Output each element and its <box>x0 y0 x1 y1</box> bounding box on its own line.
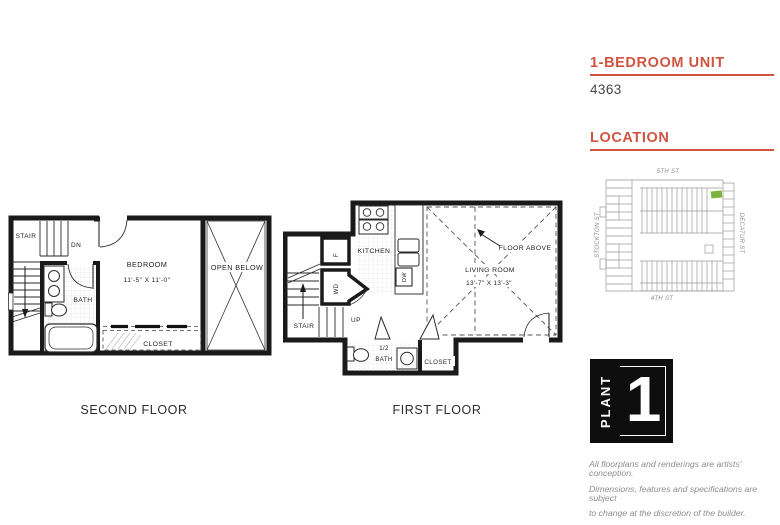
stove <box>359 206 388 234</box>
toilet-bowl <box>52 304 67 316</box>
bedroom-dimension: 11'-5" X 11'-0" <box>124 277 171 284</box>
unit-location-highlight <box>711 190 723 198</box>
street-label-top: 5TH ST <box>657 169 681 175</box>
toilet-tank <box>347 347 354 361</box>
stair-label: STAIR <box>16 233 37 240</box>
unit-type-heading: 1-BEDROOM UNIT <box>590 55 780 71</box>
unit-number: 4363 <box>590 82 622 97</box>
heading-rule <box>590 74 774 76</box>
disclaimer: All floorplans and renderings are artist… <box>589 460 780 525</box>
sink-basin <box>49 286 60 297</box>
washer-dryer-label: WD <box>334 283 340 294</box>
kitchen-sink <box>398 253 419 266</box>
half-bath-label-1: 1/2 <box>379 346 389 352</box>
kitchen-counter <box>395 205 423 294</box>
kitchen-label: KITCHEN <box>358 248 391 255</box>
plan-logo: PLANT 1 <box>590 359 673 443</box>
living-room-label: LIVING ROOM <box>465 267 515 274</box>
disclaimer-line: All floorplans and renderings are artist… <box>589 460 780 478</box>
fridge-label: F <box>334 253 340 257</box>
toilet-tank <box>45 303 52 316</box>
bedroom-label: BEDROOM <box>127 260 168 269</box>
closet-label: CLOSET <box>143 341 173 348</box>
location-heading: LOCATION <box>590 130 780 146</box>
closet-label: CLOSET <box>424 359 451 366</box>
first-floor-caption: FIRST FLOOR <box>334 403 540 417</box>
stair-label: STAIR <box>294 323 315 330</box>
open-below-label: OPEN BELOW <box>211 263 263 272</box>
second-floor-caption: SECOND FLOOR <box>31 403 237 417</box>
dn-label: DN <box>71 242 81 249</box>
street-label-left: STOCKTON ST <box>595 211 601 258</box>
left-wall-window <box>8 293 14 310</box>
half-bath-label-2: BATH <box>375 357 392 363</box>
logo-word: PLANT <box>599 374 614 427</box>
kitchen-sink <box>398 239 419 252</box>
first-floor-plan: F WD DW KITCHEN LIVING ROOM 13'-7" X 13'… <box>283 197 565 387</box>
sink-basin <box>49 271 60 282</box>
logo-number: 1 <box>614 359 673 439</box>
bath-label: BATH <box>73 297 92 304</box>
street-label-bottom: 4TH ST <box>651 296 675 302</box>
fridge-closet <box>322 238 349 264</box>
disclaimer-line: Dimensions, features and specifications … <box>589 485 780 503</box>
floor-above-label: FLOOR ABOVE <box>499 245 552 252</box>
street-label-right: DECATUR ST <box>738 213 744 255</box>
toilet-bowl <box>354 349 369 362</box>
up-label: UP <box>351 317 361 324</box>
location-map: 5TH ST 4TH ST STOCKTON ST DECATUR ST <box>592 163 746 303</box>
location-rule <box>590 149 774 151</box>
dishwasher-label: DW <box>402 272 408 282</box>
second-floor-plan: OPEN BELOW BEDROOM 11'-5" X 11'-0" CLOSE… <box>8 214 274 358</box>
sink-basin <box>401 352 414 365</box>
floorplan-sheet: { "page": { "background": "#ffffff", "ac… <box>0 0 780 517</box>
living-room-dimension: 13'-7" X 13'-3" <box>466 280 512 287</box>
unit-row-ticks <box>642 188 717 291</box>
